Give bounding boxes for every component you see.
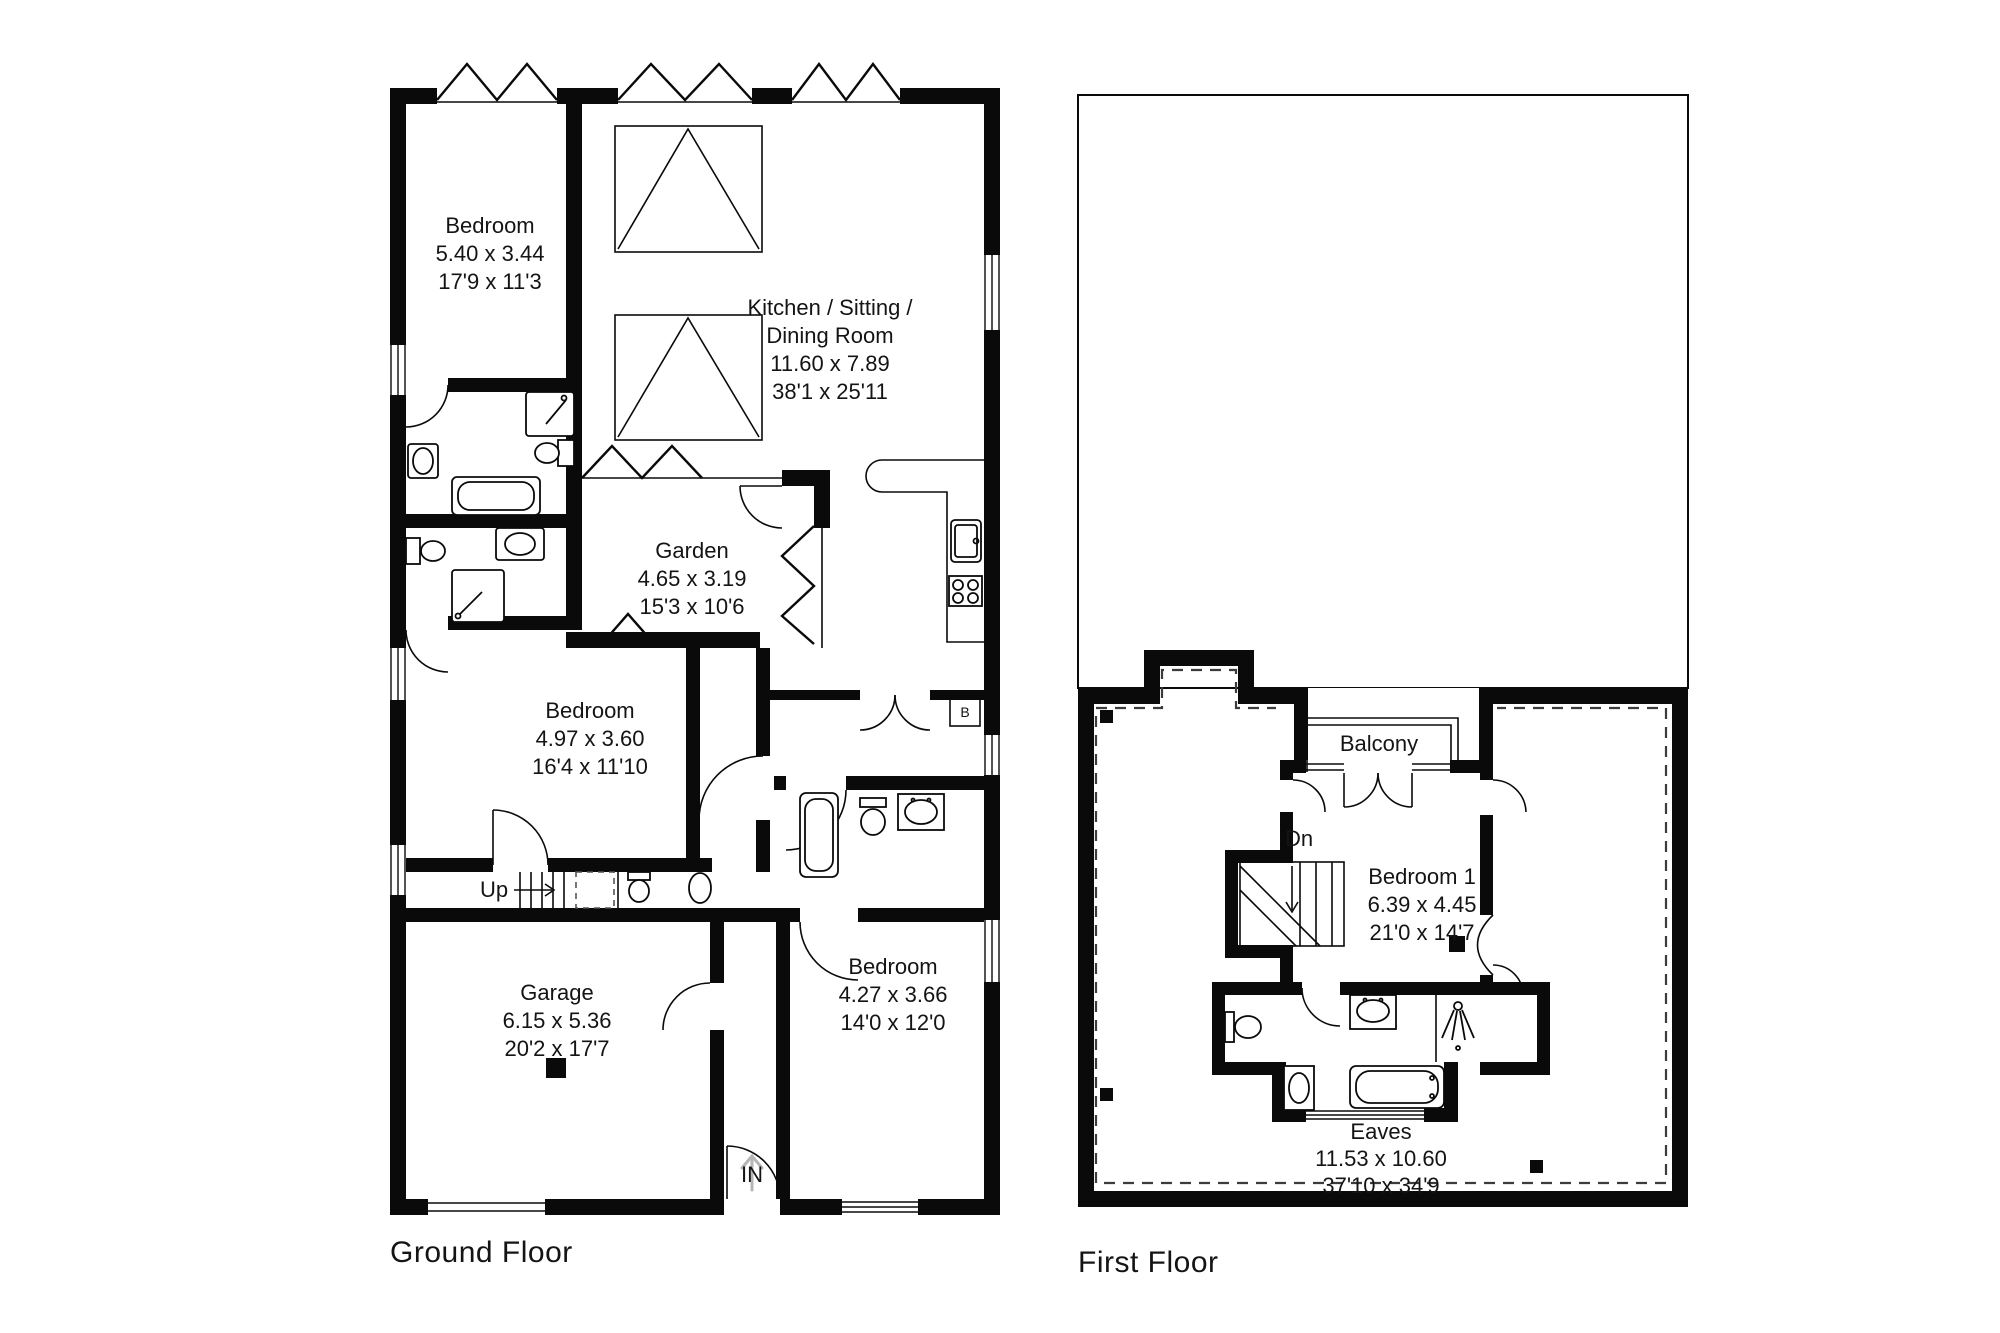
room-dims-imperial: 37'10 x 34'9 (1322, 1173, 1439, 1198)
kitchen-fixtures (866, 460, 984, 726)
sink-icon (689, 873, 711, 903)
ground-floor-title: Ground Floor (390, 1236, 573, 1269)
room-dims-metric: 6.15 x 5.36 (503, 1008, 612, 1033)
floorplan-canvas: Bedroom 5.40 x 3.44 17'9 x 11'3 Kitchen … (0, 0, 2000, 1333)
ground-floor-labels: Bedroom 5.40 x 3.44 17'9 x 11'3 Kitchen … (436, 213, 970, 1187)
first-floor-title: First Floor (1078, 1246, 1219, 1279)
roof-outline (1078, 95, 1688, 688)
toilet-icon (860, 798, 886, 807)
room-dims-imperial: 17'9 x 11'3 (438, 269, 541, 294)
room-dims-imperial: 20'2 x 17'7 (504, 1036, 609, 1061)
room-label-kitchen-2: Dining Room (766, 323, 893, 348)
floorplan-drawing: Bedroom 5.40 x 3.44 17'9 x 11'3 Kitchen … (0, 0, 2000, 1333)
room-dims-metric: 6.39 x 4.45 (1368, 892, 1477, 917)
toilet-icon (1225, 1012, 1234, 1042)
toilet-icon (558, 440, 574, 466)
roof-lantern-symbols (615, 126, 762, 440)
room-dims-metric: 4.27 x 3.66 (839, 982, 948, 1007)
bifold-door-symbols (437, 64, 900, 102)
ground-floor-stairs (514, 872, 618, 908)
room-dims-metric: 4.65 x 3.19 (638, 566, 747, 591)
toilet-icon (406, 538, 420, 564)
room-dims-imperial: 21'0 x 14'7 (1369, 920, 1474, 945)
room-label-garden: Garden (655, 538, 728, 563)
entrance-in-label: IN (741, 1162, 763, 1187)
room-label-balcony: Balcony (1340, 731, 1418, 756)
room-dims-metric: 11.60 x 7.89 (770, 351, 889, 376)
stairs-down-label: Dn (1285, 826, 1313, 851)
first-floor-plan: Balcony Dn Bedroom 1 6.39 x 4.45 21'0 x … (1078, 95, 1688, 1207)
room-label-garage: Garage (520, 980, 593, 1005)
toilet-icon (628, 872, 650, 880)
room-label-bedroom-middle: Bedroom (545, 698, 634, 723)
room-label-kitchen: Kitchen / Sitting / (747, 295, 913, 320)
room-label-bedroom1: Bedroom 1 (1368, 864, 1476, 889)
room-dims-imperial: 15'3 x 10'6 (639, 594, 744, 619)
room-dims-metric: 5.40 x 3.44 (436, 241, 545, 266)
room-dims-metric: 4.97 x 3.60 (536, 726, 645, 751)
room-dims-imperial: 16'4 x 11'10 (532, 754, 648, 779)
stairs-up-label: Up (480, 877, 508, 902)
room-label-bedroom-right: Bedroom (848, 954, 937, 979)
room-label-eaves: Eaves (1350, 1119, 1411, 1144)
ground-floor-plan: Bedroom 5.40 x 3.44 17'9 x 11'3 Kitchen … (388, 64, 1002, 1215)
room-label-bedroom-top: Bedroom (445, 213, 534, 238)
room-dims-imperial: 38'1 x 25'11 (772, 379, 888, 404)
room-dims-imperial: 14'0 x 12'0 (840, 1010, 945, 1035)
boiler-label: B (960, 704, 969, 720)
room-dims-metric: 11.53 x 10.60 (1315, 1146, 1447, 1171)
